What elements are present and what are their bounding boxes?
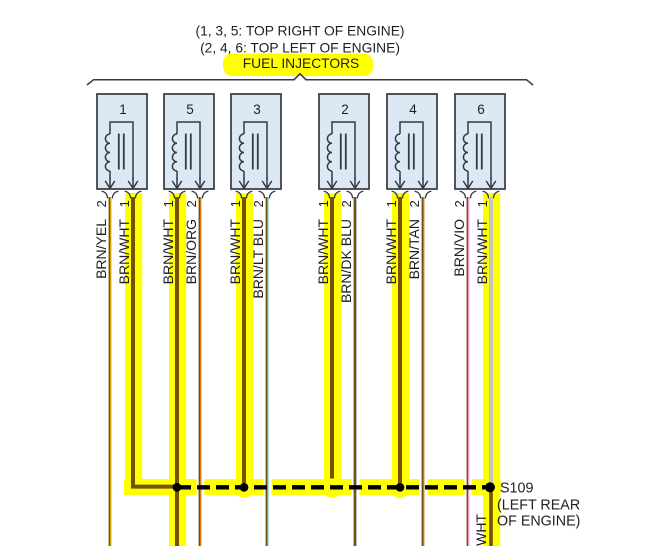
svg-text:BRN/DK BLU: BRN/DK BLU <box>338 219 354 303</box>
svg-text:2: 2 <box>339 200 354 207</box>
svg-text:1: 1 <box>316 200 331 207</box>
svg-text:BRN/VIO: BRN/VIO <box>451 219 467 277</box>
svg-text:BRN/TAN: BRN/TAN <box>406 219 422 279</box>
svg-text:(LEFT REAR: (LEFT REAR <box>497 498 580 514</box>
svg-text:BRN/WHT: BRN/WHT <box>473 514 489 546</box>
svg-text:1: 1 <box>161 200 176 207</box>
svg-text:1: 1 <box>119 102 127 117</box>
svg-text:(1, 3, 5: TOP RIGHT OF ENGINE): (1, 3, 5: TOP RIGHT OF ENGINE) <box>195 24 404 39</box>
svg-text:BRN/YEL: BRN/YEL <box>93 219 109 279</box>
svg-text:BRN/WHT: BRN/WHT <box>474 219 490 285</box>
svg-text:BRN/WHT: BRN/WHT <box>315 219 331 285</box>
svg-text:6: 6 <box>477 102 485 117</box>
svg-text:BRN/WHT: BRN/WHT <box>116 219 132 285</box>
svg-text:4: 4 <box>409 102 417 117</box>
svg-text:(2, 4, 6: TOP LEFT OF ENGINE): (2, 4, 6: TOP LEFT OF ENGINE) <box>200 41 400 56</box>
svg-text:BRN/WHT: BRN/WHT <box>227 219 243 285</box>
svg-text:OF ENGINE): OF ENGINE) <box>497 514 580 530</box>
svg-text:2: 2 <box>251 200 266 207</box>
svg-text:BRN/WHT: BRN/WHT <box>160 219 176 285</box>
svg-text:2: 2 <box>94 200 109 207</box>
svg-text:BRN/WHT: BRN/WHT <box>383 219 399 285</box>
svg-text:2: 2 <box>184 200 199 207</box>
svg-text:1: 1 <box>117 200 132 207</box>
svg-text:BRN/LT BLU: BRN/LT BLU <box>250 219 266 299</box>
svg-text:1: 1 <box>228 200 243 207</box>
svg-text:FUEL INJECTORS: FUEL INJECTORS <box>243 56 360 71</box>
svg-text:BRN/ORG: BRN/ORG <box>183 219 199 284</box>
svg-text:1: 1 <box>384 200 399 207</box>
svg-text:2: 2 <box>452 200 467 207</box>
svg-text:1: 1 <box>475 200 490 207</box>
svg-text:3: 3 <box>253 102 261 117</box>
svg-text:2: 2 <box>341 102 349 117</box>
svg-text:2: 2 <box>407 200 422 207</box>
svg-text:S109: S109 <box>500 481 533 497</box>
svg-text:5: 5 <box>186 102 194 117</box>
